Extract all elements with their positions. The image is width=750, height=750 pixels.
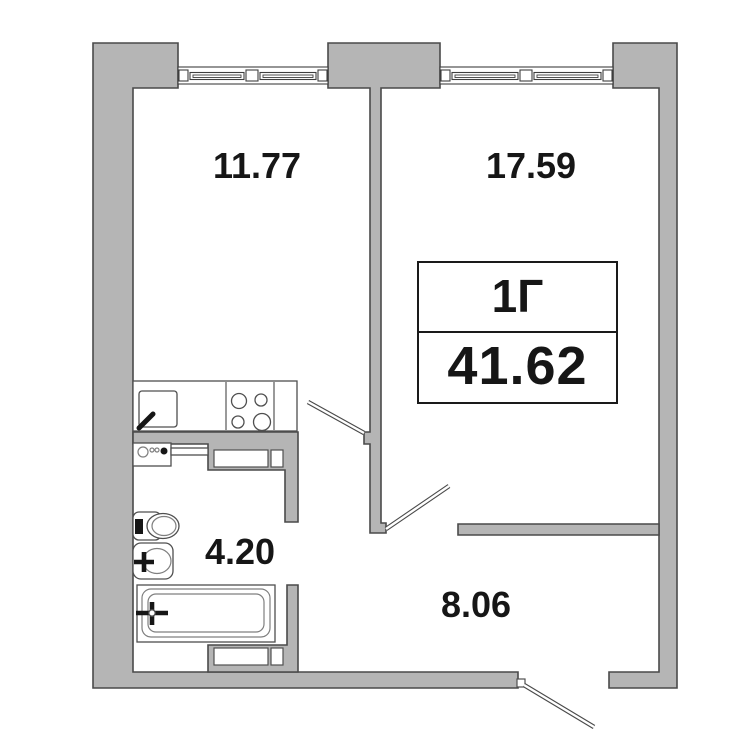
door-leaf-icon: [308, 402, 364, 433]
bathtub-icon: [136, 585, 275, 642]
shelf: [171, 448, 208, 455]
vent-opening-icon: [271, 450, 283, 467]
vent-opening-icon: [271, 648, 283, 665]
vent-opening-icon: [214, 648, 268, 665]
wall-hallway-bedroom: [458, 524, 659, 535]
door-leaf-icon: [524, 685, 594, 727]
room-area-label-bathroom: 4.20: [165, 531, 315, 573]
stove-burner-icon: [232, 416, 244, 428]
window-mullion: [179, 70, 188, 81]
window-glass-line: [537, 75, 598, 78]
floor-plan: 11.77 17.59 4.20 8.06 1Г 41.62: [0, 0, 750, 750]
washing-machine-icon: [133, 443, 208, 466]
window-mullion: [520, 70, 532, 81]
unit-type-label: 1Г: [419, 263, 616, 333]
room-area-label-hallway: 8.06: [401, 584, 551, 626]
unit-info-box: 1Г 41.62: [417, 261, 618, 404]
window-right: [440, 67, 613, 84]
room-area-label-kitchen: 11.77: [179, 145, 335, 187]
toilet-flush: [135, 519, 143, 534]
window-mullion: [603, 70, 612, 81]
room-area-label-bedroom: 17.59: [453, 145, 609, 187]
window-left: [178, 67, 328, 84]
window-glass-line: [263, 75, 313, 78]
bedroom-door: [386, 486, 449, 529]
washer-knob: [161, 448, 168, 455]
kitchen-door: [308, 402, 364, 433]
entrance-door: [517, 679, 594, 727]
window-mullion: [441, 70, 450, 81]
stove-burner-icon: [255, 394, 267, 406]
window-mullion: [318, 70, 327, 81]
wall-right: [609, 43, 677, 688]
stove-burner-icon: [254, 414, 271, 431]
window-mullion: [246, 70, 258, 81]
tub-tap-center: [149, 610, 155, 616]
kitchen-counter-icon: [133, 381, 297, 431]
window-glass-line: [455, 75, 515, 78]
door-leaf-icon: [386, 486, 449, 529]
vent-opening-icon: [214, 450, 268, 467]
unit-total-area-label: 41.62: [419, 333, 616, 402]
stove-burner-icon: [232, 394, 247, 409]
window-glass-line: [193, 75, 241, 78]
floor-plan-drawing: [0, 0, 750, 750]
